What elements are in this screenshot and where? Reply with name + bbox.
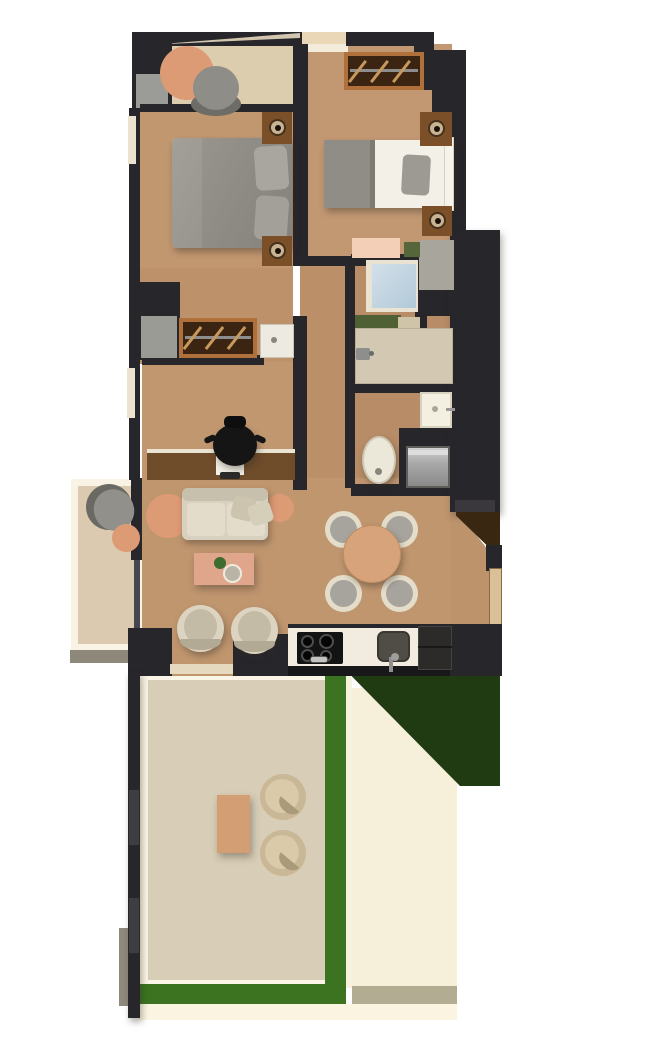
wall-terrace-left-seg1 (129, 790, 139, 845)
shower-glass (372, 264, 416, 308)
washing-machine-lid (408, 450, 448, 455)
wall-washer-top (399, 428, 454, 446)
lamp-3-dot (434, 126, 440, 132)
top-door (302, 32, 346, 44)
wall-entry-niche (455, 500, 495, 512)
office-chair (213, 424, 257, 466)
lamp-4-dot (435, 218, 441, 224)
entry-door (489, 568, 502, 630)
floor-plan (0, 0, 655, 1042)
tub-faucet (356, 348, 370, 360)
bath-sink-drain (432, 406, 438, 412)
office-chair-headrest (224, 416, 246, 428)
walkway-band (352, 986, 457, 1004)
dining-chair-se-seat (386, 580, 413, 607)
sofa-back (182, 488, 268, 501)
grass-strip-right (325, 674, 346, 988)
sofa-cushion-1 (187, 503, 225, 536)
balcony-chair-seat (193, 66, 239, 110)
terrace-threshold (170, 664, 234, 674)
bed2-headboard (444, 137, 454, 211)
toilet-flush (375, 468, 382, 475)
wall-terrace-left-seg2 (129, 898, 139, 953)
wall-terrace-door-left (128, 628, 172, 676)
wall-right-bedroom2 (452, 50, 466, 258)
armchair-1-seat (184, 609, 217, 644)
bed1-duvet-fold (172, 138, 202, 248)
terrace-table (217, 795, 250, 853)
bedroom2-mat (352, 238, 400, 258)
bath-sink-tap (446, 408, 455, 411)
fridge (418, 626, 452, 670)
bed2-pillow (401, 154, 431, 195)
wall-kitchen-right (450, 624, 502, 676)
wall-terrace-left (128, 672, 140, 1018)
desk-laptop-base (220, 472, 240, 479)
cooktop-burner-1 (301, 635, 314, 648)
window-left-office (127, 368, 135, 418)
hall-door-handle (271, 337, 277, 343)
wall-bath-left (345, 258, 355, 488)
window-left-bedroom1 (128, 116, 136, 164)
dining-chair-sw-seat (330, 580, 357, 607)
grass-strip-bottom (138, 984, 346, 1004)
wall-bedrooms-divider (293, 44, 308, 256)
wall-right-step (432, 50, 454, 116)
dining-table (343, 525, 401, 583)
wall-bath-mid (419, 288, 454, 316)
cooktop-burner-2 (319, 634, 334, 649)
fridge-seam (418, 646, 452, 648)
bed1-pillow-1 (254, 145, 290, 191)
balcony-left-rug (112, 524, 140, 552)
lamp-2-dot (275, 248, 281, 254)
toilet (362, 436, 396, 484)
coffee-table-tray (223, 564, 242, 583)
bath-plant (404, 242, 420, 257)
bed1-pillow-2 (254, 195, 290, 241)
wall-hall-corridor (293, 316, 307, 490)
closet-panel (141, 316, 177, 358)
walkway-bottom (138, 1004, 457, 1020)
lamp-1-dot (275, 125, 281, 131)
cooktop-handle (310, 656, 328, 663)
bed2-blanket (324, 140, 372, 208)
tub-faucet-dot (369, 351, 374, 356)
wall-right-band (450, 230, 500, 512)
hall-door (260, 324, 294, 358)
armchair-2-seat (238, 611, 271, 646)
sink-faucet-head (391, 653, 399, 661)
bath-entry-tiles (419, 240, 454, 290)
bed2-blanket-edge (370, 140, 375, 208)
